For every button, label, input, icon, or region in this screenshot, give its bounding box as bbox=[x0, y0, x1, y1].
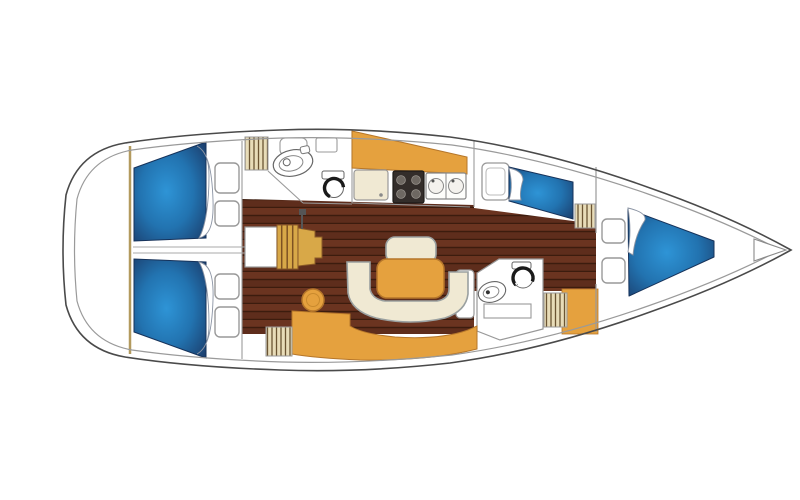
storage-locker bbox=[602, 219, 625, 243]
saloon-table bbox=[377, 259, 444, 298]
companionway-steps bbox=[277, 225, 298, 269]
double-sink-icon bbox=[426, 173, 466, 199]
icebox-icon bbox=[482, 163, 509, 200]
storage-locker bbox=[215, 307, 239, 337]
hanging-locker bbox=[266, 327, 292, 356]
head-hatch bbox=[316, 138, 337, 152]
galley-sink-icon bbox=[354, 170, 388, 200]
hanging-locker bbox=[544, 293, 567, 327]
head-counter bbox=[484, 304, 531, 318]
chart-table bbox=[245, 227, 277, 267]
storage-locker bbox=[215, 201, 239, 226]
stove-icon bbox=[393, 171, 424, 203]
storage-locker bbox=[215, 274, 239, 299]
storage-locker bbox=[215, 163, 239, 193]
hanging-locker bbox=[575, 204, 595, 228]
yacht-floorplan-diagram bbox=[0, 0, 800, 500]
floorplan-svg bbox=[0, 0, 800, 500]
stool bbox=[302, 289, 324, 311]
storage-locker bbox=[602, 258, 625, 283]
hanging-locker bbox=[245, 137, 268, 170]
